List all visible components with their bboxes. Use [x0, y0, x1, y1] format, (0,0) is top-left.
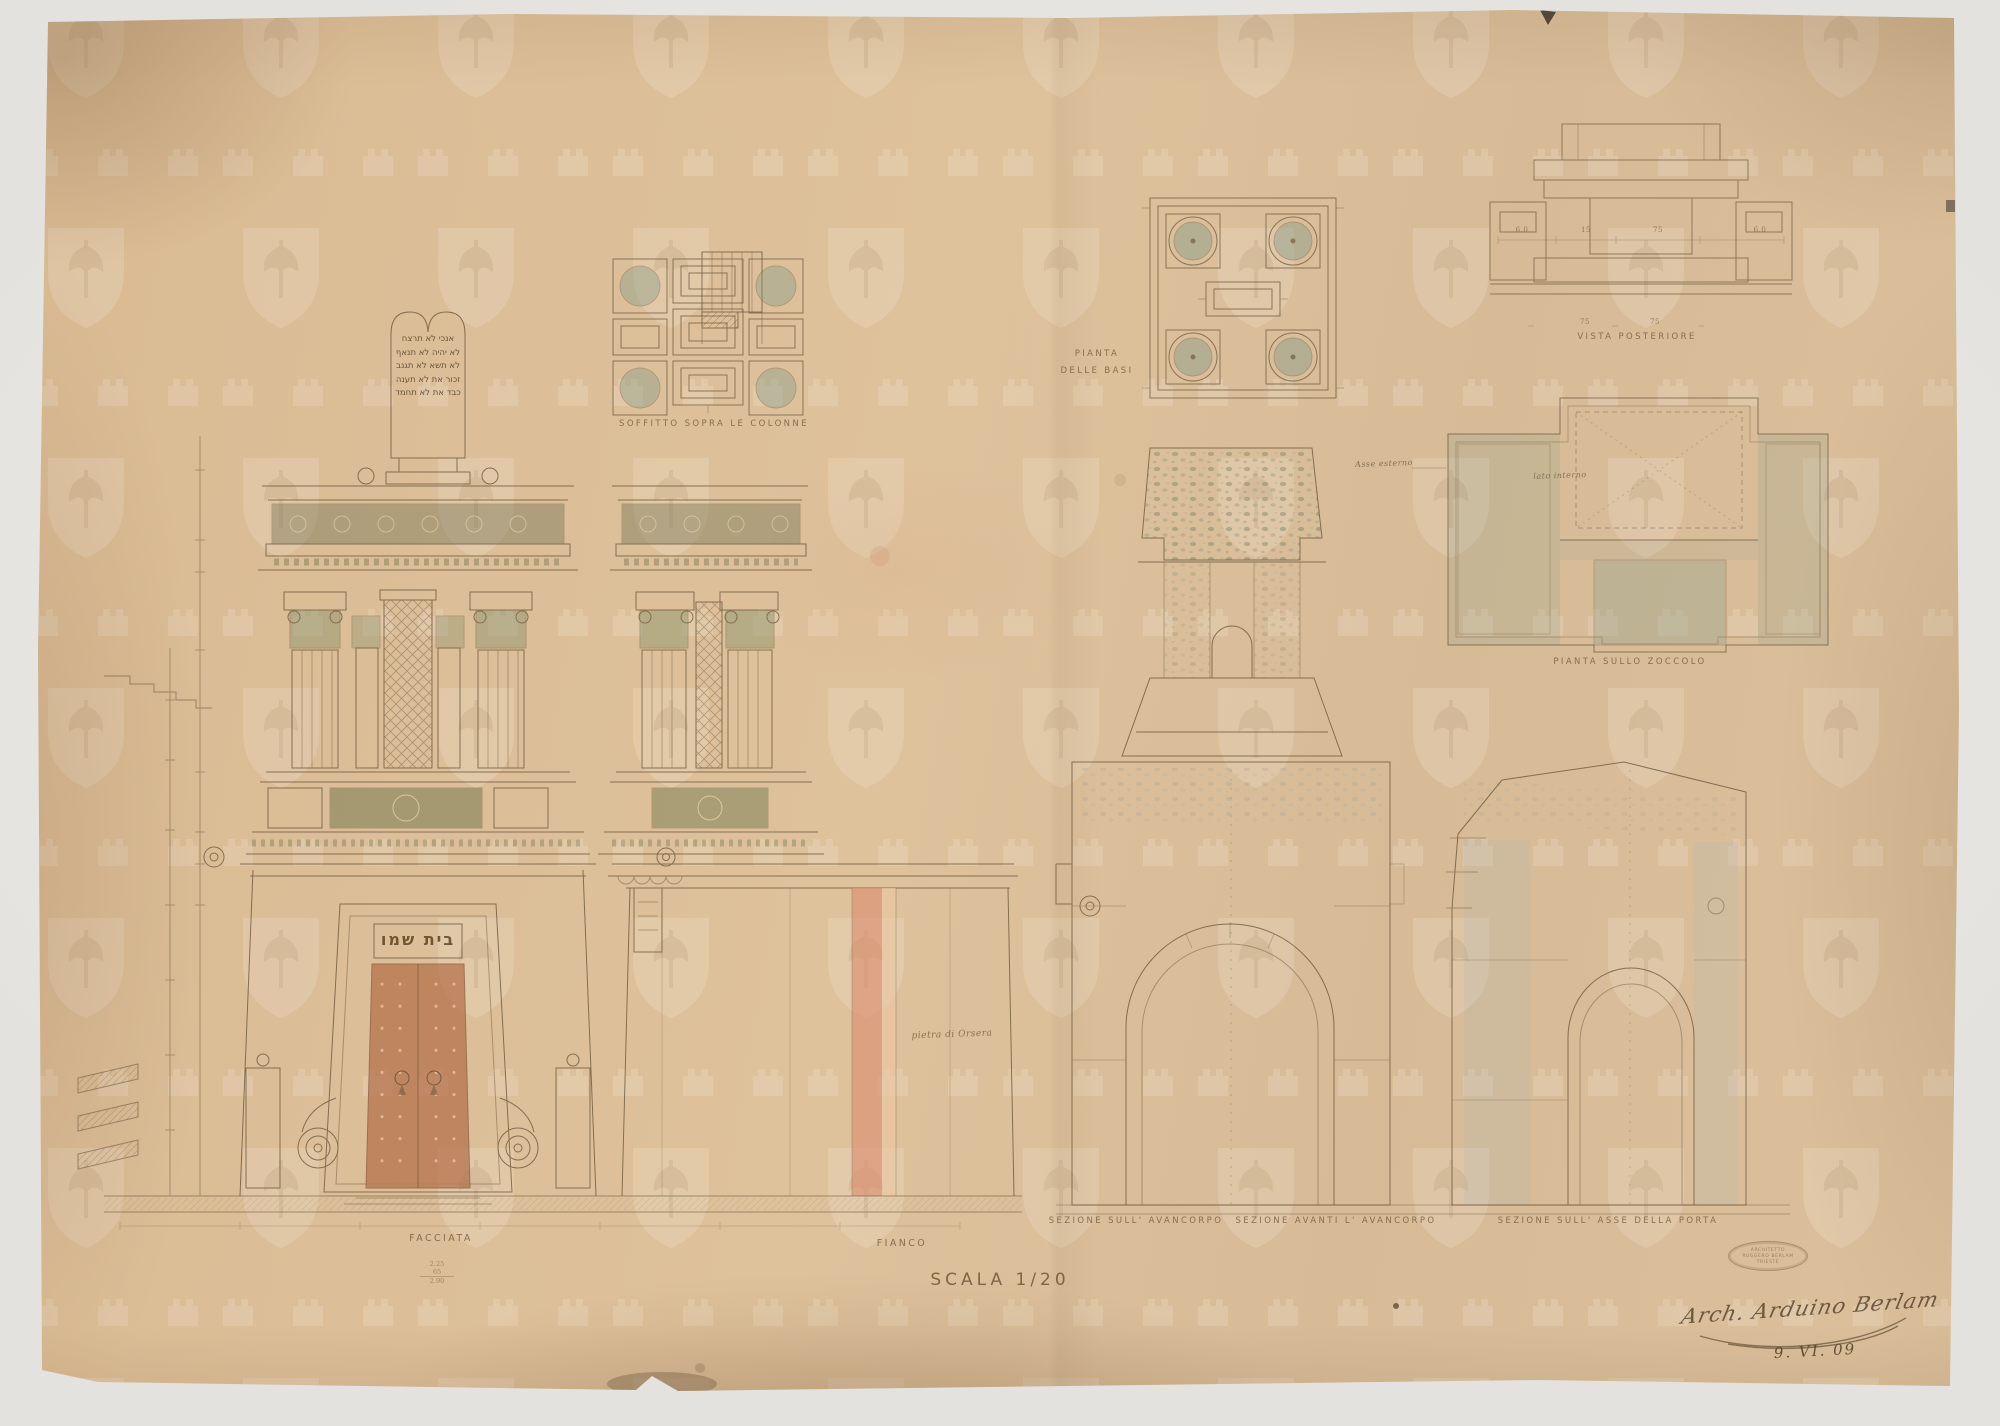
tablet-line: כבד את לא תחמד [385, 387, 471, 401]
bases-plan [1142, 198, 1344, 398]
architect-stamp: ARCHITETTO RUGGERO BERLAM TRIESTE [1728, 1241, 1808, 1271]
rear-dim: 75 [1653, 226, 1663, 234]
drawing-sheet: אנכי לא תרצח לא יהיה לא תנאף לא תשא לא ת… [38, 10, 1962, 1392]
facade-elevation [204, 312, 596, 1204]
tablets-inscription: אנכי לא תרצח לא יהיה לא תנאף לא תשא לא ת… [385, 333, 471, 401]
caption-sezione-avancorpo: SEZIONE SULL' AVANCORPO [1049, 1216, 1224, 1226]
rear-view [1490, 124, 1792, 326]
caption-pianta-basi-2: DELLE BASI [1060, 366, 1133, 376]
caption-scala: SCALA 1/20 [930, 1270, 1069, 1290]
facade-sum-note: 2.25 65 2.90 [420, 1260, 454, 1285]
rear-dim: 15 [1581, 226, 1591, 234]
caption-sezione-porta: SEZIONE SULL' ASSE DELLA PORTA [1498, 1216, 1719, 1226]
plinth-plan [1412, 398, 1828, 652]
caption-sezione-avanti: SEZIONE AVANTI L' AVANCORPO [1236, 1216, 1437, 1226]
door-lintel-inscription: בית שמו [381, 930, 455, 949]
side-elevation [598, 252, 1018, 1196]
ceiling-plan [613, 259, 803, 415]
caption-pianta-zoccolo: PIANTA SULLO ZOCCOLO [1553, 657, 1706, 667]
tablet-line: זכור את לא תענה [385, 374, 471, 388]
rear-dim: 6.0 [1516, 226, 1529, 234]
ink-drawings [0, 0, 2000, 1426]
rear-dim: 75 [1580, 318, 1590, 326]
section-door-axis [1446, 762, 1746, 1205]
caption-facciata: FACCIATA [409, 1233, 473, 1244]
paper-defects [607, 10, 1955, 1396]
rear-dim: 6.0 [1754, 226, 1767, 234]
tablet-line: לא יהיה לא תנאף [385, 347, 471, 361]
caption-pianta-basi-1: PIANTA [1075, 349, 1120, 359]
rear-dim: 75 [1650, 318, 1660, 326]
caption-fianco: FIANCO [877, 1238, 927, 1249]
caption-vista-posteriore: VISTA POSTERIORE [1577, 332, 1696, 342]
caption-soffitto: SOFFITTO SOPRA LE COLONNE [619, 419, 809, 429]
note-lato-interno: lato interno [1533, 470, 1587, 481]
tablet-line: לא תשא לא תגנב [385, 360, 471, 374]
section-avancorpo [1056, 448, 1404, 1205]
scanned-drawing-photo: אנכי לא תרצח לא יהיה לא תנאף לא תשא לא ת… [0, 0, 2000, 1426]
tablet-line: אנכי לא תרצח [385, 333, 471, 347]
